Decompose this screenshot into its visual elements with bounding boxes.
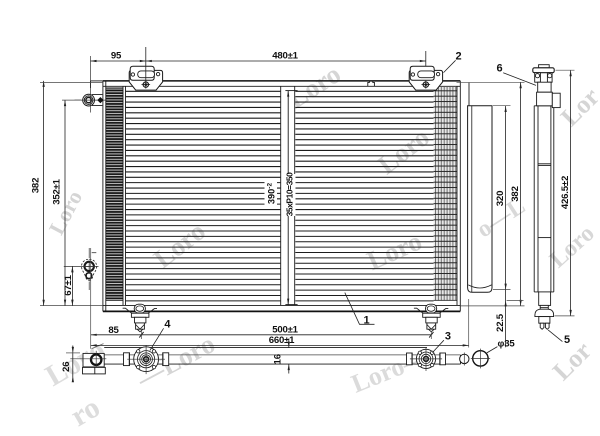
svg-text:6: 6 [497,63,503,75]
svg-text:480±1: 480±1 [272,50,298,61]
svg-text:660±1: 660±1 [269,335,295,346]
svg-text:426.5±2: 426.5±2 [560,176,571,209]
svg-text:26: 26 [61,362,72,372]
svg-text:4: 4 [164,318,171,330]
svg-text:35xP10=350: 35xP10=350 [284,172,294,216]
svg-text:500±1: 500±1 [272,325,298,336]
svg-text:φ35: φ35 [498,338,516,349]
svg-text:320: 320 [495,191,506,206]
svg-text:95: 95 [111,50,122,61]
svg-text:352±1: 352±1 [52,178,63,204]
svg-text:382: 382 [31,178,42,193]
svg-text:3: 3 [445,330,451,342]
svg-text:2: 2 [456,51,462,63]
svg-text:16: 16 [272,354,283,365]
svg-text:67±1: 67±1 [63,274,74,295]
svg-text:382: 382 [510,186,521,201]
svg-text:22.5: 22.5 [495,313,506,332]
svg-text:1: 1 [363,315,369,327]
svg-text:85: 85 [108,325,119,336]
svg-text:5: 5 [564,334,570,346]
